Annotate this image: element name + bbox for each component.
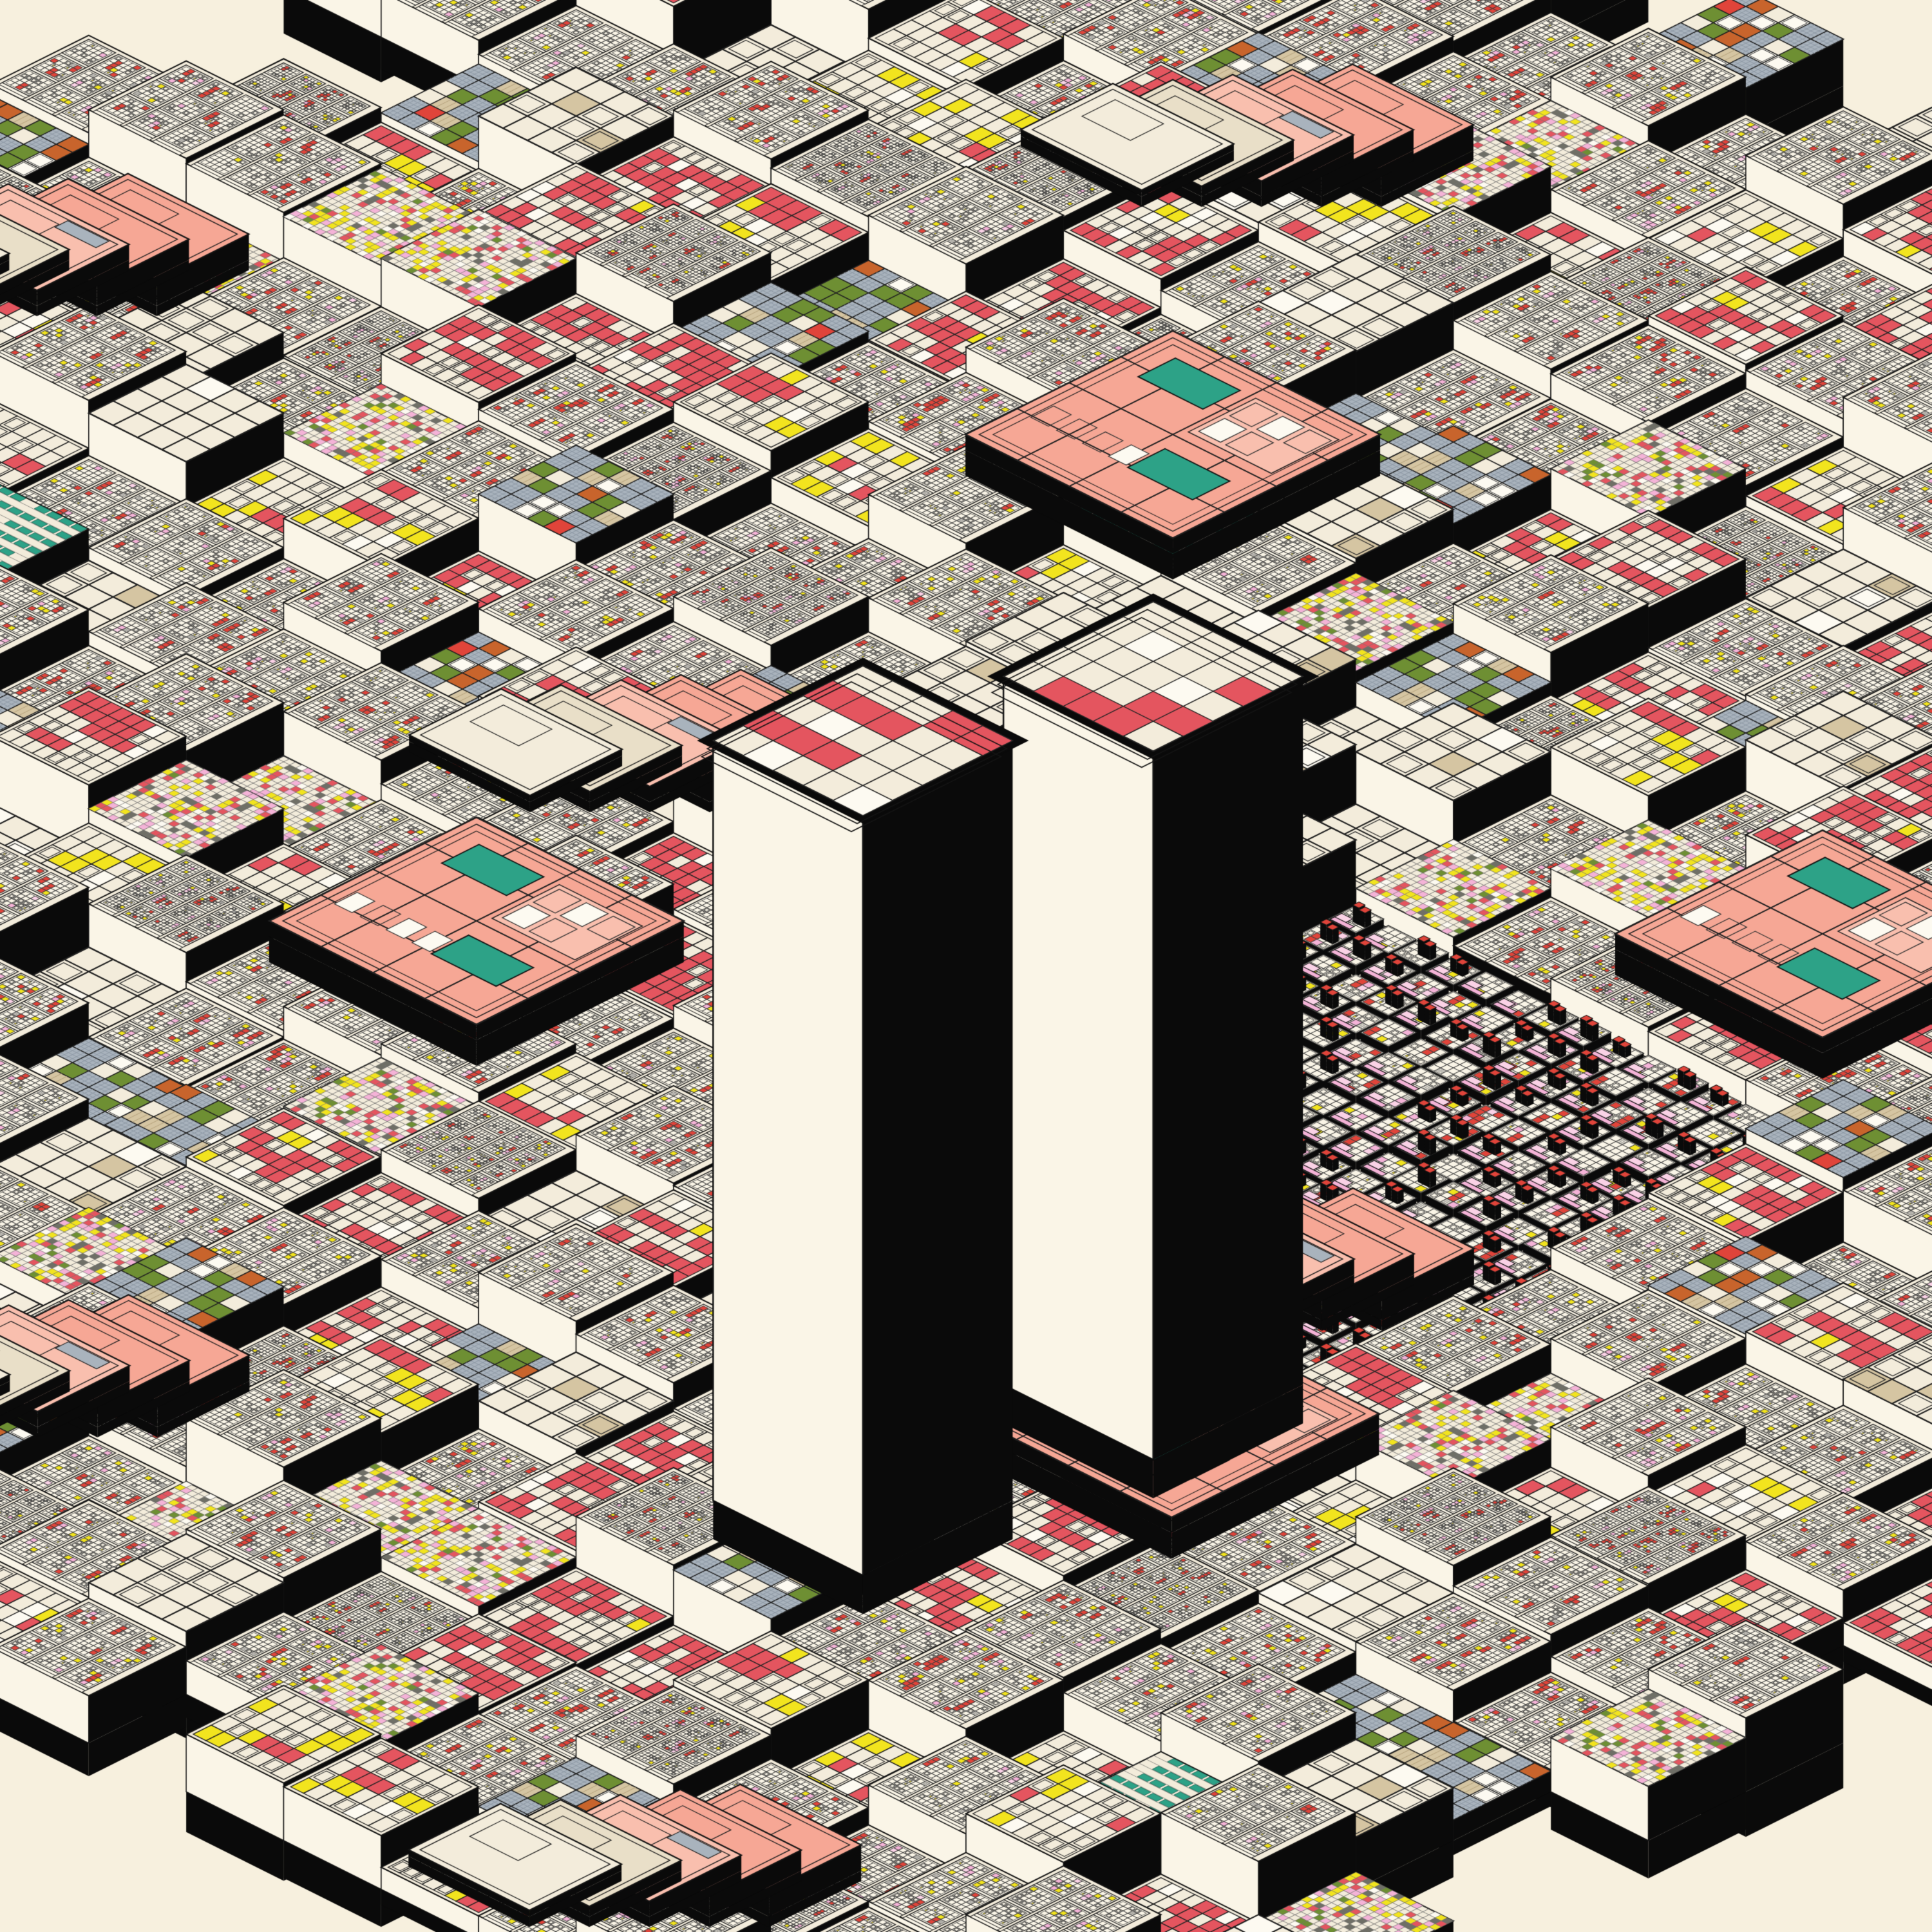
isometric-city-canvas bbox=[0, 0, 1932, 1932]
generative-artwork bbox=[0, 0, 1932, 1932]
